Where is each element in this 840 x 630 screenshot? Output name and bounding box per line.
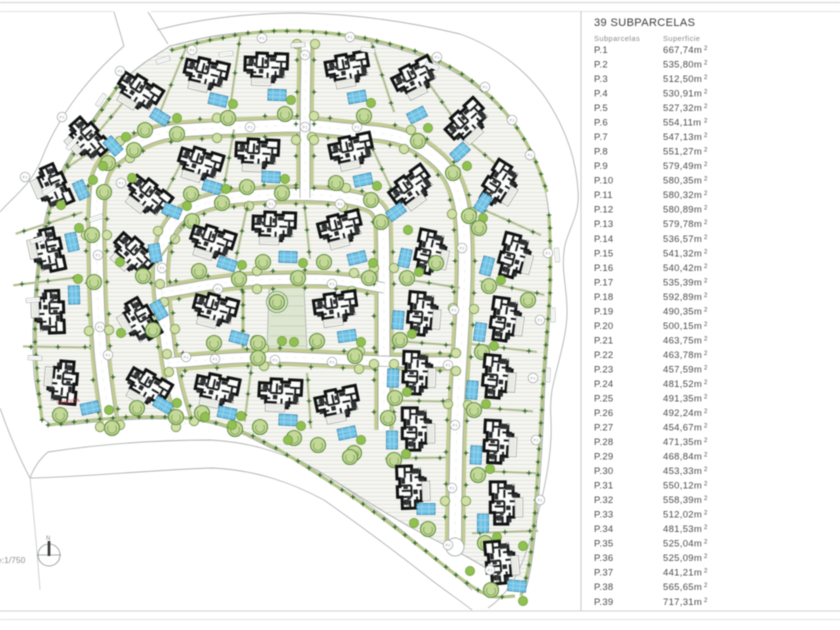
svg-text:2: 2 <box>704 496 708 502</box>
svg-text:527,32m: 527,32m <box>663 103 702 114</box>
svg-text:P.12: P.12 <box>594 205 614 216</box>
svg-text:457,59m: 457,59m <box>663 364 702 375</box>
svg-text:580,32m: 580,32m <box>663 190 702 201</box>
svg-text:471,35m: 471,35m <box>663 437 702 448</box>
svg-text:2: 2 <box>704 482 708 488</box>
svg-text:Superficie: Superficie <box>663 34 700 43</box>
svg-text:492,24m: 492,24m <box>663 408 702 419</box>
svg-text:P.23: P.23 <box>594 364 614 375</box>
svg-text:2: 2 <box>704 554 708 560</box>
svg-text:525,04m: 525,04m <box>663 539 702 550</box>
svg-text:P.33: P.33 <box>594 510 614 521</box>
svg-text:491,35m: 491,35m <box>663 394 702 405</box>
svg-text:P.34: P.34 <box>594 524 614 535</box>
svg-text:558,39m: 558,39m <box>663 495 702 506</box>
svg-text:565,65m: 565,65m <box>663 582 702 593</box>
svg-text:N: N <box>46 536 50 542</box>
svg-text:P.18: P.18 <box>594 292 614 303</box>
svg-text:2: 2 <box>704 569 708 575</box>
svg-text:2: 2 <box>704 395 708 401</box>
svg-text:536,57m: 536,57m <box>663 234 702 245</box>
svg-text:535,39m: 535,39m <box>663 277 702 288</box>
svg-text:P.22: P.22 <box>594 350 614 361</box>
svg-text:2: 2 <box>704 598 708 604</box>
svg-text:P.17: P.17 <box>594 277 614 288</box>
svg-text:P.24: P.24 <box>594 379 614 390</box>
svg-text:P.7: P.7 <box>594 132 608 143</box>
svg-text:P.14: P.14 <box>594 234 614 245</box>
svg-text:2: 2 <box>704 75 708 81</box>
svg-text:2: 2 <box>704 380 708 386</box>
svg-text:2: 2 <box>704 453 708 459</box>
svg-text:454,67m: 454,67m <box>663 423 702 434</box>
svg-text:512,02m: 512,02m <box>663 510 702 521</box>
svg-text:441,21m: 441,21m <box>663 568 702 579</box>
svg-text:P.1: P.1 <box>594 45 608 56</box>
svg-text:2: 2 <box>704 336 708 342</box>
svg-text:P.28: P.28 <box>594 437 614 448</box>
svg-text:2: 2 <box>704 264 708 270</box>
svg-text:2: 2 <box>704 278 708 284</box>
svg-text:463,78m: 463,78m <box>663 350 702 361</box>
svg-text:2: 2 <box>704 119 708 125</box>
svg-text:2: 2 <box>704 307 708 313</box>
svg-text:2: 2 <box>704 322 708 328</box>
svg-text:P.11: P.11 <box>594 190 613 201</box>
svg-text:P.10: P.10 <box>594 176 614 187</box>
svg-text:P.26: P.26 <box>594 408 614 419</box>
svg-text:579,78m: 579,78m <box>663 219 702 230</box>
svg-text:P.16: P.16 <box>594 263 614 274</box>
svg-text:551,27m: 551,27m <box>663 147 702 158</box>
svg-text:490,35m: 490,35m <box>663 306 702 317</box>
svg-text:2: 2 <box>704 46 708 52</box>
svg-text:39 SUBPARCELAS: 39 SUBPARCELAS <box>594 17 695 29</box>
svg-text:2: 2 <box>704 104 708 110</box>
svg-text:481,53m: 481,53m <box>663 524 702 535</box>
svg-text:P.36: P.36 <box>594 553 614 564</box>
svg-text:2: 2 <box>704 191 708 197</box>
svg-text:P.30: P.30 <box>594 466 614 477</box>
svg-text:530,91m: 530,91m <box>663 89 702 100</box>
svg-text:P.32: P.32 <box>594 495 614 506</box>
svg-text:554,11m: 554,11m <box>663 118 701 129</box>
svg-text:2: 2 <box>704 424 708 430</box>
svg-text:P.15: P.15 <box>594 248 614 259</box>
svg-text:2: 2 <box>704 249 708 255</box>
svg-text:453,33m: 453,33m <box>663 466 702 477</box>
svg-text:468,84m: 468,84m <box>663 452 702 463</box>
svg-text:2: 2 <box>704 525 708 531</box>
svg-text:2: 2 <box>704 206 708 212</box>
svg-text:580,89m: 580,89m <box>663 205 702 216</box>
svg-text:540,42m: 540,42m <box>663 263 702 274</box>
svg-text:Subparcelas: Subparcelas <box>594 34 640 43</box>
svg-text:2: 2 <box>704 220 708 226</box>
svg-text:2: 2 <box>704 235 708 241</box>
svg-text:2: 2 <box>704 148 708 154</box>
svg-text:2: 2 <box>704 177 708 183</box>
svg-text:2: 2 <box>704 351 708 357</box>
svg-text:535,80m: 535,80m <box>663 60 702 71</box>
svg-text:P.35: P.35 <box>594 539 614 550</box>
svg-text:P.9: P.9 <box>594 161 608 172</box>
svg-text:592,89m: 592,89m <box>663 292 702 303</box>
svg-text:717,31m: 717,31m <box>663 597 702 608</box>
svg-text:2: 2 <box>704 133 708 139</box>
svg-text:P.39: P.39 <box>594 597 614 608</box>
svg-text:2: 2 <box>704 365 708 371</box>
svg-text:2: 2 <box>704 438 708 444</box>
svg-text:2: 2 <box>704 162 708 168</box>
svg-text:2: 2 <box>704 293 708 299</box>
svg-text:e:1/750: e:1/750 <box>0 555 26 565</box>
svg-text:550,12m: 550,12m <box>663 481 702 492</box>
svg-text:463,75m: 463,75m <box>663 335 702 346</box>
svg-text:P.8: P.8 <box>594 147 608 158</box>
svg-text:P.38: P.38 <box>594 582 614 593</box>
svg-text:500,15m: 500,15m <box>663 321 702 332</box>
svg-text:P.29: P.29 <box>594 452 614 463</box>
svg-text:481,52m: 481,52m <box>663 379 702 390</box>
svg-text:667,74m: 667,74m <box>663 45 702 56</box>
svg-text:P.3: P.3 <box>594 74 608 85</box>
svg-text:P.2: P.2 <box>594 60 608 71</box>
svg-text:P.27: P.27 <box>594 423 614 434</box>
svg-text:580,35m: 580,35m <box>663 176 702 187</box>
svg-text:P.37: P.37 <box>594 568 614 579</box>
svg-text:P.25: P.25 <box>594 394 614 405</box>
svg-text:525,09m: 525,09m <box>663 553 702 564</box>
svg-text:P.20: P.20 <box>594 321 614 332</box>
svg-text:547,13m: 547,13m <box>663 132 702 143</box>
svg-text:P.21: P.21 <box>594 335 614 346</box>
svg-text:P.6: P.6 <box>594 118 608 129</box>
svg-text:541,32m: 541,32m <box>663 248 702 259</box>
svg-text:2: 2 <box>704 467 708 473</box>
svg-text:P.5: P.5 <box>594 103 608 114</box>
svg-text:2: 2 <box>704 583 708 589</box>
svg-text:P.31: P.31 <box>594 481 614 492</box>
svg-text:P.19: P.19 <box>594 306 614 317</box>
svg-text:512,50m: 512,50m <box>663 74 702 85</box>
svg-text:2: 2 <box>704 511 708 517</box>
svg-text:P.13: P.13 <box>594 219 614 230</box>
svg-text:2: 2 <box>704 61 708 67</box>
svg-text:579,49m: 579,49m <box>663 161 702 172</box>
svg-text:2: 2 <box>704 90 708 96</box>
svg-text:2: 2 <box>704 409 708 415</box>
svg-text:P.4: P.4 <box>594 89 608 100</box>
svg-text:2: 2 <box>704 540 708 546</box>
